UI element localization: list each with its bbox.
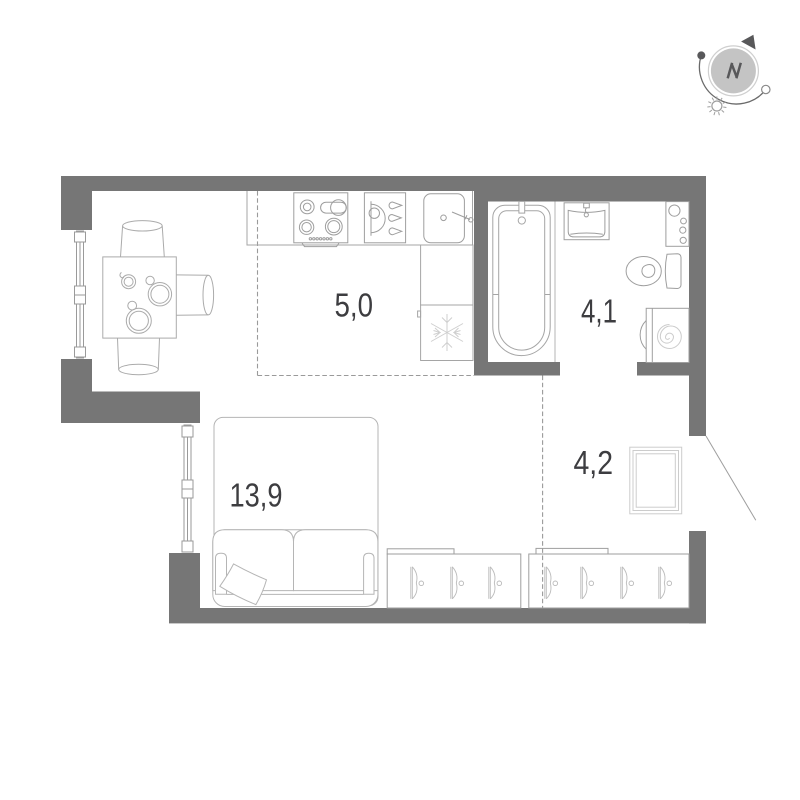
svg-text:13,9: 13,9 (230, 477, 283, 514)
svg-text:5,0: 5,0 (335, 287, 374, 324)
svg-text:4,2: 4,2 (574, 444, 614, 481)
svg-text:4,1: 4,1 (581, 293, 617, 330)
